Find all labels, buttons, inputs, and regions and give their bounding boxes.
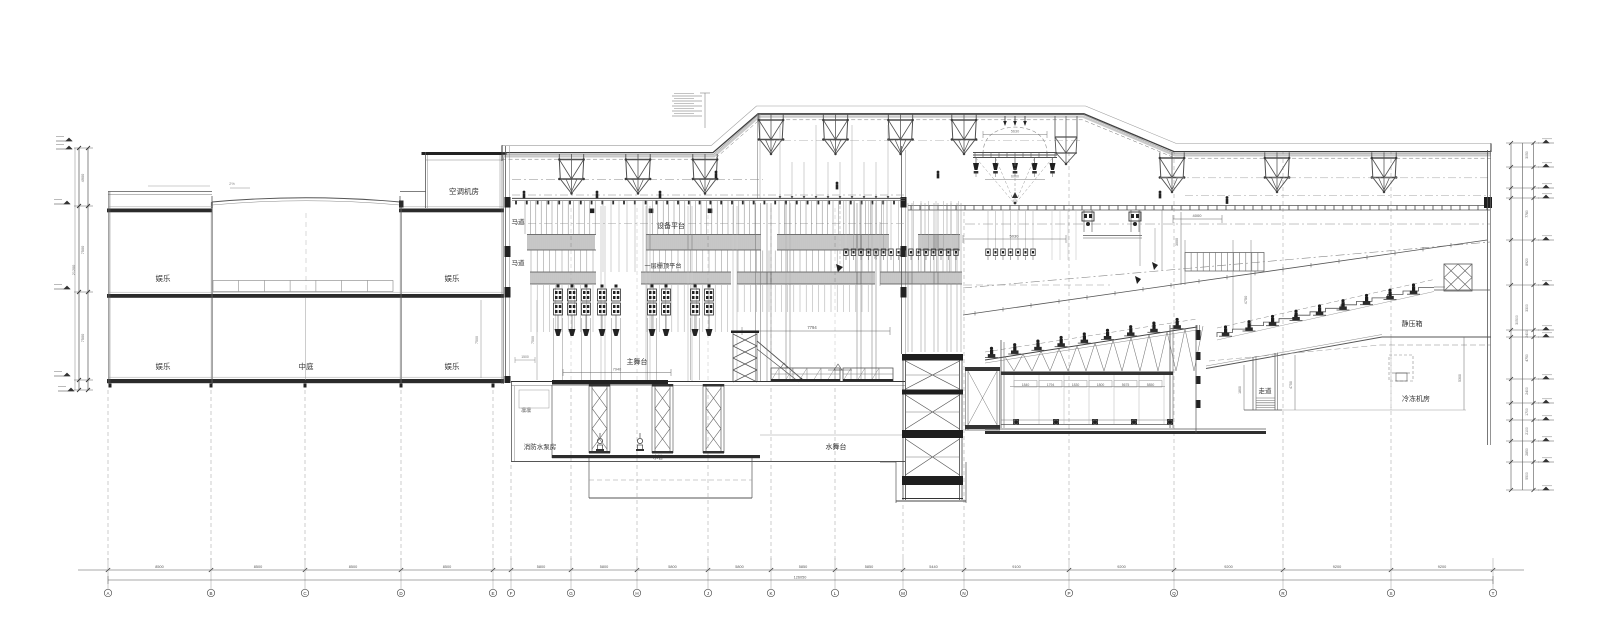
- svg-text:F: F: [510, 591, 513, 596]
- svg-text:马道: 马道: [512, 258, 526, 267]
- svg-text:2400: 2400: [1525, 330, 1529, 338]
- svg-text:5300: 5300: [1458, 374, 1462, 382]
- svg-text:走道: 走道: [1259, 386, 1273, 395]
- svg-text:M: M: [901, 591, 905, 596]
- svg-text:4900: 4900: [81, 174, 85, 182]
- svg-text:9200: 9200: [1438, 565, 1446, 569]
- svg-text:9100: 9100: [1012, 565, 1020, 569]
- svg-text:7500: 7500: [475, 336, 479, 344]
- svg-text:5030: 5030: [1010, 234, 1020, 239]
- svg-text:8500: 8500: [254, 565, 262, 569]
- svg-text:空调机房: 空调机房: [449, 186, 479, 196]
- svg-text:1500: 1500: [521, 355, 529, 359]
- svg-text:设备平台: 设备平台: [657, 221, 685, 230]
- svg-text:水舞台: 水舞台: [826, 442, 847, 451]
- svg-text:5500: 5500: [1525, 472, 1529, 480]
- svg-text:1700: 1700: [1525, 408, 1529, 416]
- svg-text:4750: 4750: [1525, 354, 1529, 362]
- svg-text:30500: 30500: [1515, 315, 1519, 325]
- svg-text:E: E: [491, 591, 494, 596]
- svg-text:冷冻机房: 冷冻机房: [1402, 394, 1430, 403]
- svg-text:3300: 3300: [1525, 304, 1529, 312]
- svg-text:9200: 9200: [1224, 565, 1232, 569]
- svg-text:5675: 5675: [1122, 383, 1130, 387]
- svg-text:P: P: [1067, 591, 1070, 596]
- svg-text:8500: 8500: [155, 565, 163, 569]
- svg-text:7500: 7500: [531, 336, 535, 344]
- svg-text:7000: 7000: [874, 251, 878, 259]
- svg-text:4750: 4750: [1244, 296, 1248, 304]
- svg-text:9200: 9200: [1333, 565, 1341, 569]
- svg-text:7940: 7940: [613, 368, 621, 372]
- svg-text:7500: 7500: [81, 334, 85, 342]
- svg-text:5850: 5850: [1147, 383, 1155, 387]
- svg-text:娱乐: 娱乐: [445, 361, 460, 371]
- svg-text:1800: 1800: [1097, 383, 1105, 387]
- svg-text:6000: 6000: [1011, 175, 1019, 179]
- svg-text:G: G: [569, 591, 573, 596]
- svg-text:5630: 5630: [1011, 130, 1019, 134]
- svg-text:5800: 5800: [668, 565, 676, 569]
- svg-text:S: S: [1389, 591, 1392, 596]
- svg-text:马道: 马道: [512, 217, 526, 226]
- svg-text:5440: 5440: [929, 565, 937, 569]
- svg-text:B: B: [209, 591, 212, 596]
- svg-text:7794: 7794: [807, 325, 817, 330]
- svg-text:消防水泵房: 消防水泵房: [524, 442, 557, 451]
- svg-text:K: K: [769, 591, 772, 596]
- svg-text:3000: 3000: [1175, 238, 1179, 246]
- svg-text:1830: 1830: [1072, 383, 1080, 387]
- svg-text:娱乐: 娱乐: [156, 273, 171, 283]
- svg-text:娱乐: 娱乐: [445, 273, 460, 283]
- svg-text:5800: 5800: [735, 565, 743, 569]
- svg-text:2400: 2400: [1525, 387, 1529, 395]
- svg-text:8500: 8500: [443, 565, 451, 569]
- svg-text:4750: 4750: [1289, 381, 1293, 389]
- svg-text:1794: 1794: [1047, 383, 1055, 387]
- svg-text:5800: 5800: [600, 565, 608, 569]
- svg-text:7780: 7780: [1525, 210, 1529, 218]
- svg-text:中庭: 中庭: [299, 361, 314, 371]
- svg-text:8920: 8920: [1525, 258, 1529, 266]
- svg-text:5850: 5850: [865, 565, 873, 569]
- svg-text:1840: 1840: [1022, 383, 1030, 387]
- svg-text:21200: 21200: [72, 265, 76, 276]
- svg-text:5850: 5850: [799, 565, 807, 569]
- svg-text:一层栅顶平台: 一层栅顶平台: [644, 262, 681, 270]
- svg-text:A: A: [106, 591, 109, 596]
- svg-text:T: T: [1492, 591, 1495, 596]
- svg-text:2%: 2%: [229, 181, 235, 186]
- svg-text:2100: 2100: [1525, 427, 1529, 435]
- svg-text:H: H: [635, 591, 638, 596]
- svg-text:4000: 4000: [1193, 213, 1203, 218]
- svg-text:静压箱: 静压箱: [1402, 319, 1423, 328]
- svg-text:3050: 3050: [1525, 151, 1529, 159]
- svg-text:主舞台: 主舞台: [627, 357, 648, 366]
- svg-text:8500: 8500: [349, 565, 357, 569]
- svg-text:9200: 9200: [1117, 565, 1125, 569]
- svg-text:5800: 5800: [537, 565, 545, 569]
- svg-text:1800: 1800: [1238, 386, 1242, 394]
- svg-text:N: N: [962, 591, 965, 596]
- svg-text:126050: 126050: [794, 576, 807, 580]
- svg-text:7500: 7500: [81, 246, 85, 254]
- svg-text:Q: Q: [1172, 591, 1176, 596]
- svg-text:J: J: [707, 591, 709, 596]
- svg-text:2850: 2850: [1525, 448, 1529, 456]
- svg-text:娱乐: 娱乐: [156, 361, 171, 371]
